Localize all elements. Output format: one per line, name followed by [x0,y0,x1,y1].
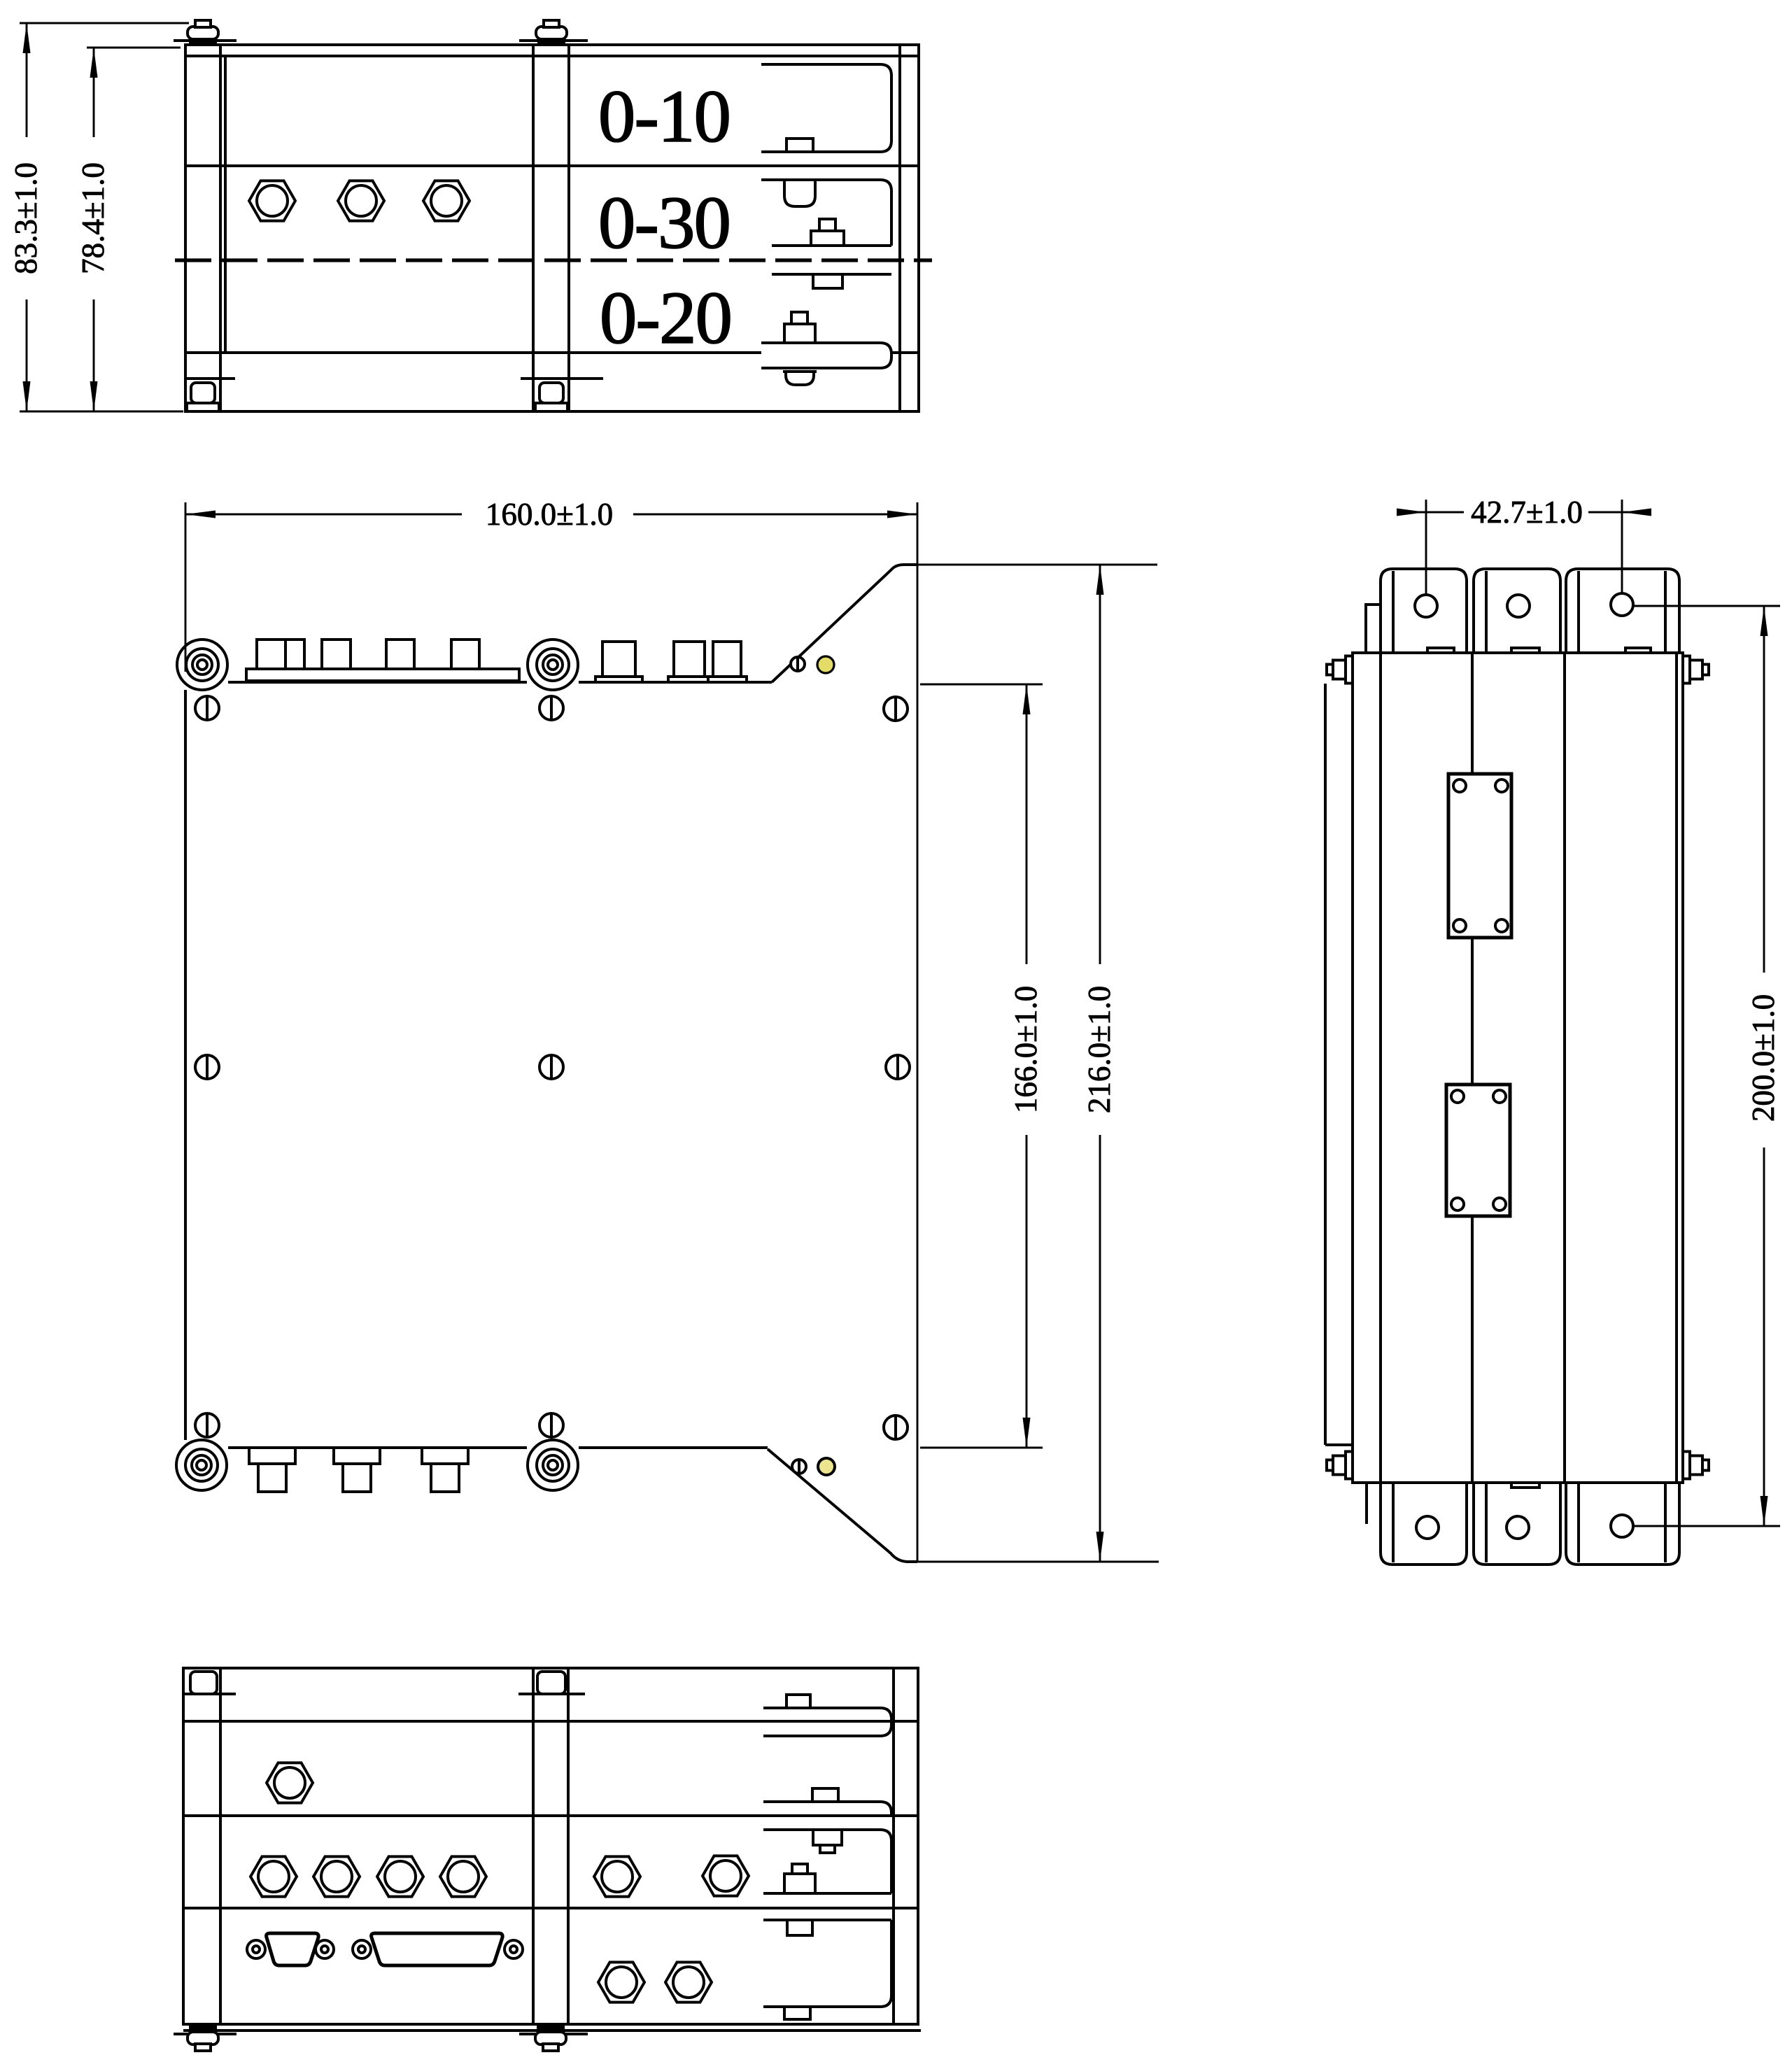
svg-text:78.4±1.0: 78.4±1.0 [76,162,111,274]
svg-text:200.0±1.0: 200.0±1.0 [1746,994,1781,1122]
svg-text:83.3±1.0: 83.3±1.0 [8,162,43,274]
svg-text:0-20: 0-20 [600,277,731,360]
svg-text:0-30: 0-30 [598,182,730,264]
svg-text:160.0±1.0: 160.0±1.0 [486,497,613,532]
svg-text:42.7±1.0: 42.7±1.0 [1471,495,1583,530]
svg-text:166.0±1.0: 166.0±1.0 [1008,986,1043,1113]
svg-text:0-10: 0-10 [598,76,730,158]
svg-text:216.0±1.0: 216.0±1.0 [1082,986,1117,1113]
